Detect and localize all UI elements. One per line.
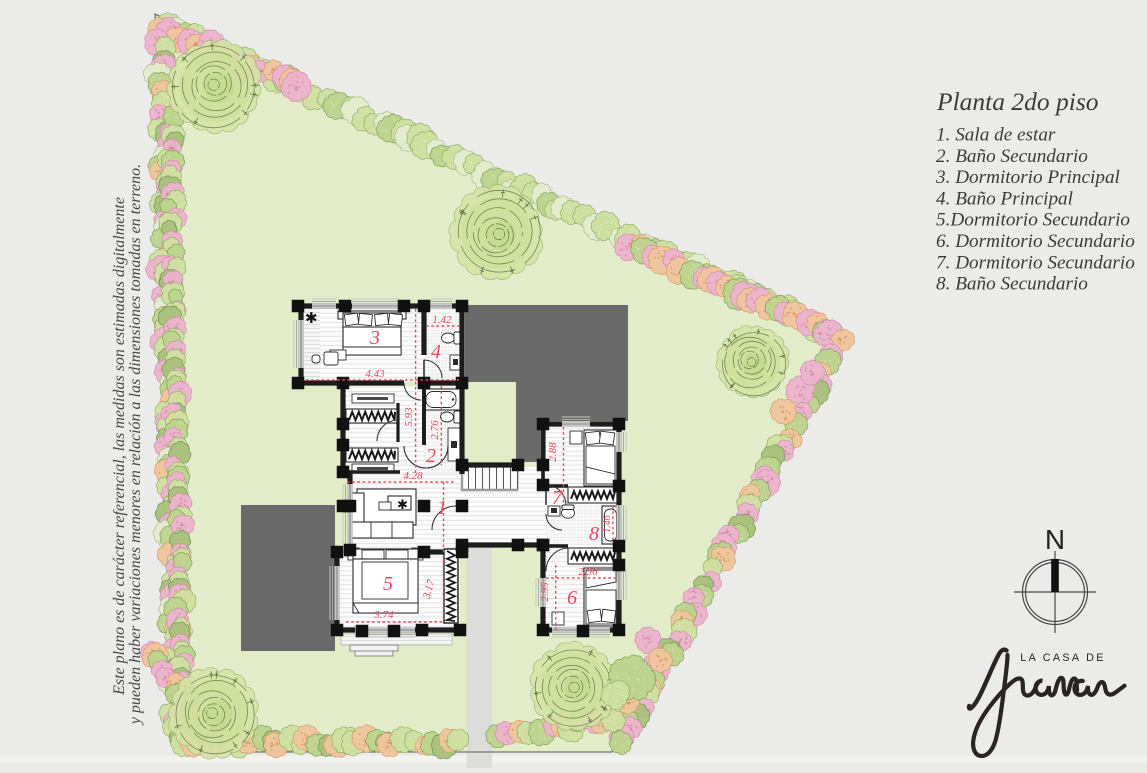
svg-text:N: N bbox=[1045, 524, 1065, 555]
svg-text:5.93: 5.93 bbox=[403, 407, 415, 427]
svg-text:Planta 2do piso: Planta 2do piso bbox=[936, 87, 1099, 116]
svg-text:Este plano es de carácter refe: Este plano es de carácter referencial, l… bbox=[111, 197, 128, 696]
svg-text:1.42: 1.42 bbox=[432, 314, 452, 326]
svg-text:4.43: 4.43 bbox=[365, 368, 385, 380]
svg-text:5.Dormitorio Secundario: 5.Dormitorio Secundario bbox=[936, 210, 1130, 231]
svg-text:8. Baño Secundario: 8. Baño Secundario bbox=[936, 274, 1088, 295]
svg-text:7. Dormitorio Secundario: 7. Dormitorio Secundario bbox=[936, 252, 1135, 273]
svg-text:✱: ✱ bbox=[397, 497, 408, 512]
svg-text:LA CASA DE: LA CASA DE bbox=[1020, 652, 1105, 664]
svg-text:1. Sala de estar: 1. Sala de estar bbox=[936, 125, 1056, 146]
svg-text:6: 6 bbox=[567, 587, 577, 609]
svg-text:8: 8 bbox=[589, 523, 599, 545]
svg-text:1: 1 bbox=[437, 497, 447, 519]
svg-text:4.28: 4.28 bbox=[403, 470, 423, 482]
svg-text:2.95: 2.95 bbox=[539, 582, 551, 602]
svg-text:4: 4 bbox=[431, 341, 441, 363]
svg-text:3: 3 bbox=[369, 327, 380, 349]
svg-text:1.46: 1.46 bbox=[602, 515, 613, 533]
svg-text:5: 5 bbox=[383, 573, 393, 595]
svg-text:2.88: 2.88 bbox=[547, 442, 559, 462]
svg-text:2.96: 2.96 bbox=[578, 566, 598, 578]
svg-text:2. Baño Secundario: 2. Baño Secundario bbox=[936, 146, 1088, 167]
svg-text:6. Dormitorio Secundario: 6. Dormitorio Secundario bbox=[936, 231, 1135, 252]
svg-text:✱: ✱ bbox=[305, 310, 318, 327]
svg-text:2: 2 bbox=[426, 445, 436, 467]
svg-text:7: 7 bbox=[552, 487, 563, 509]
svg-text:3. Dormitorio Principal: 3. Dormitorio Principal bbox=[935, 167, 1120, 188]
svg-text:3.74: 3.74 bbox=[373, 609, 394, 621]
svg-text:4. Baño Principal: 4. Baño Principal bbox=[936, 188, 1073, 209]
svg-text:2.76: 2.76 bbox=[429, 420, 441, 440]
svg-text:y pueden haber variaciones men: y pueden haber variaciones menores en re… bbox=[127, 164, 144, 726]
